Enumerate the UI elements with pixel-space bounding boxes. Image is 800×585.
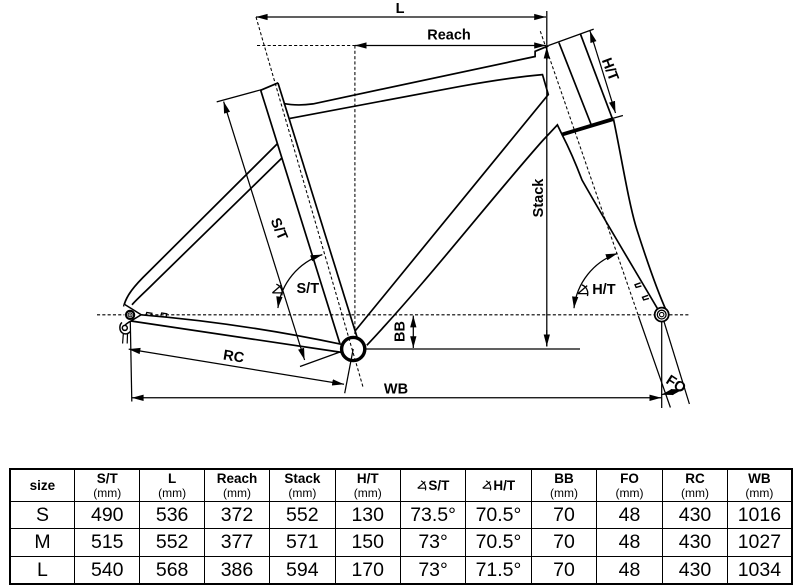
- svg-text:WB: WB: [384, 381, 408, 397]
- svg-text:H/T: H/T: [592, 282, 616, 298]
- svg-text:H/T: H/T: [598, 56, 621, 84]
- svg-text:L: L: [396, 1, 405, 17]
- svg-text:Stack: Stack: [531, 178, 547, 218]
- svg-text:BB: BB: [393, 321, 409, 342]
- svg-text:S/T: S/T: [297, 281, 320, 297]
- svg-text:S/T: S/T: [267, 216, 291, 243]
- svg-text:RC: RC: [222, 348, 246, 367]
- svg-text:Reach: Reach: [427, 28, 471, 44]
